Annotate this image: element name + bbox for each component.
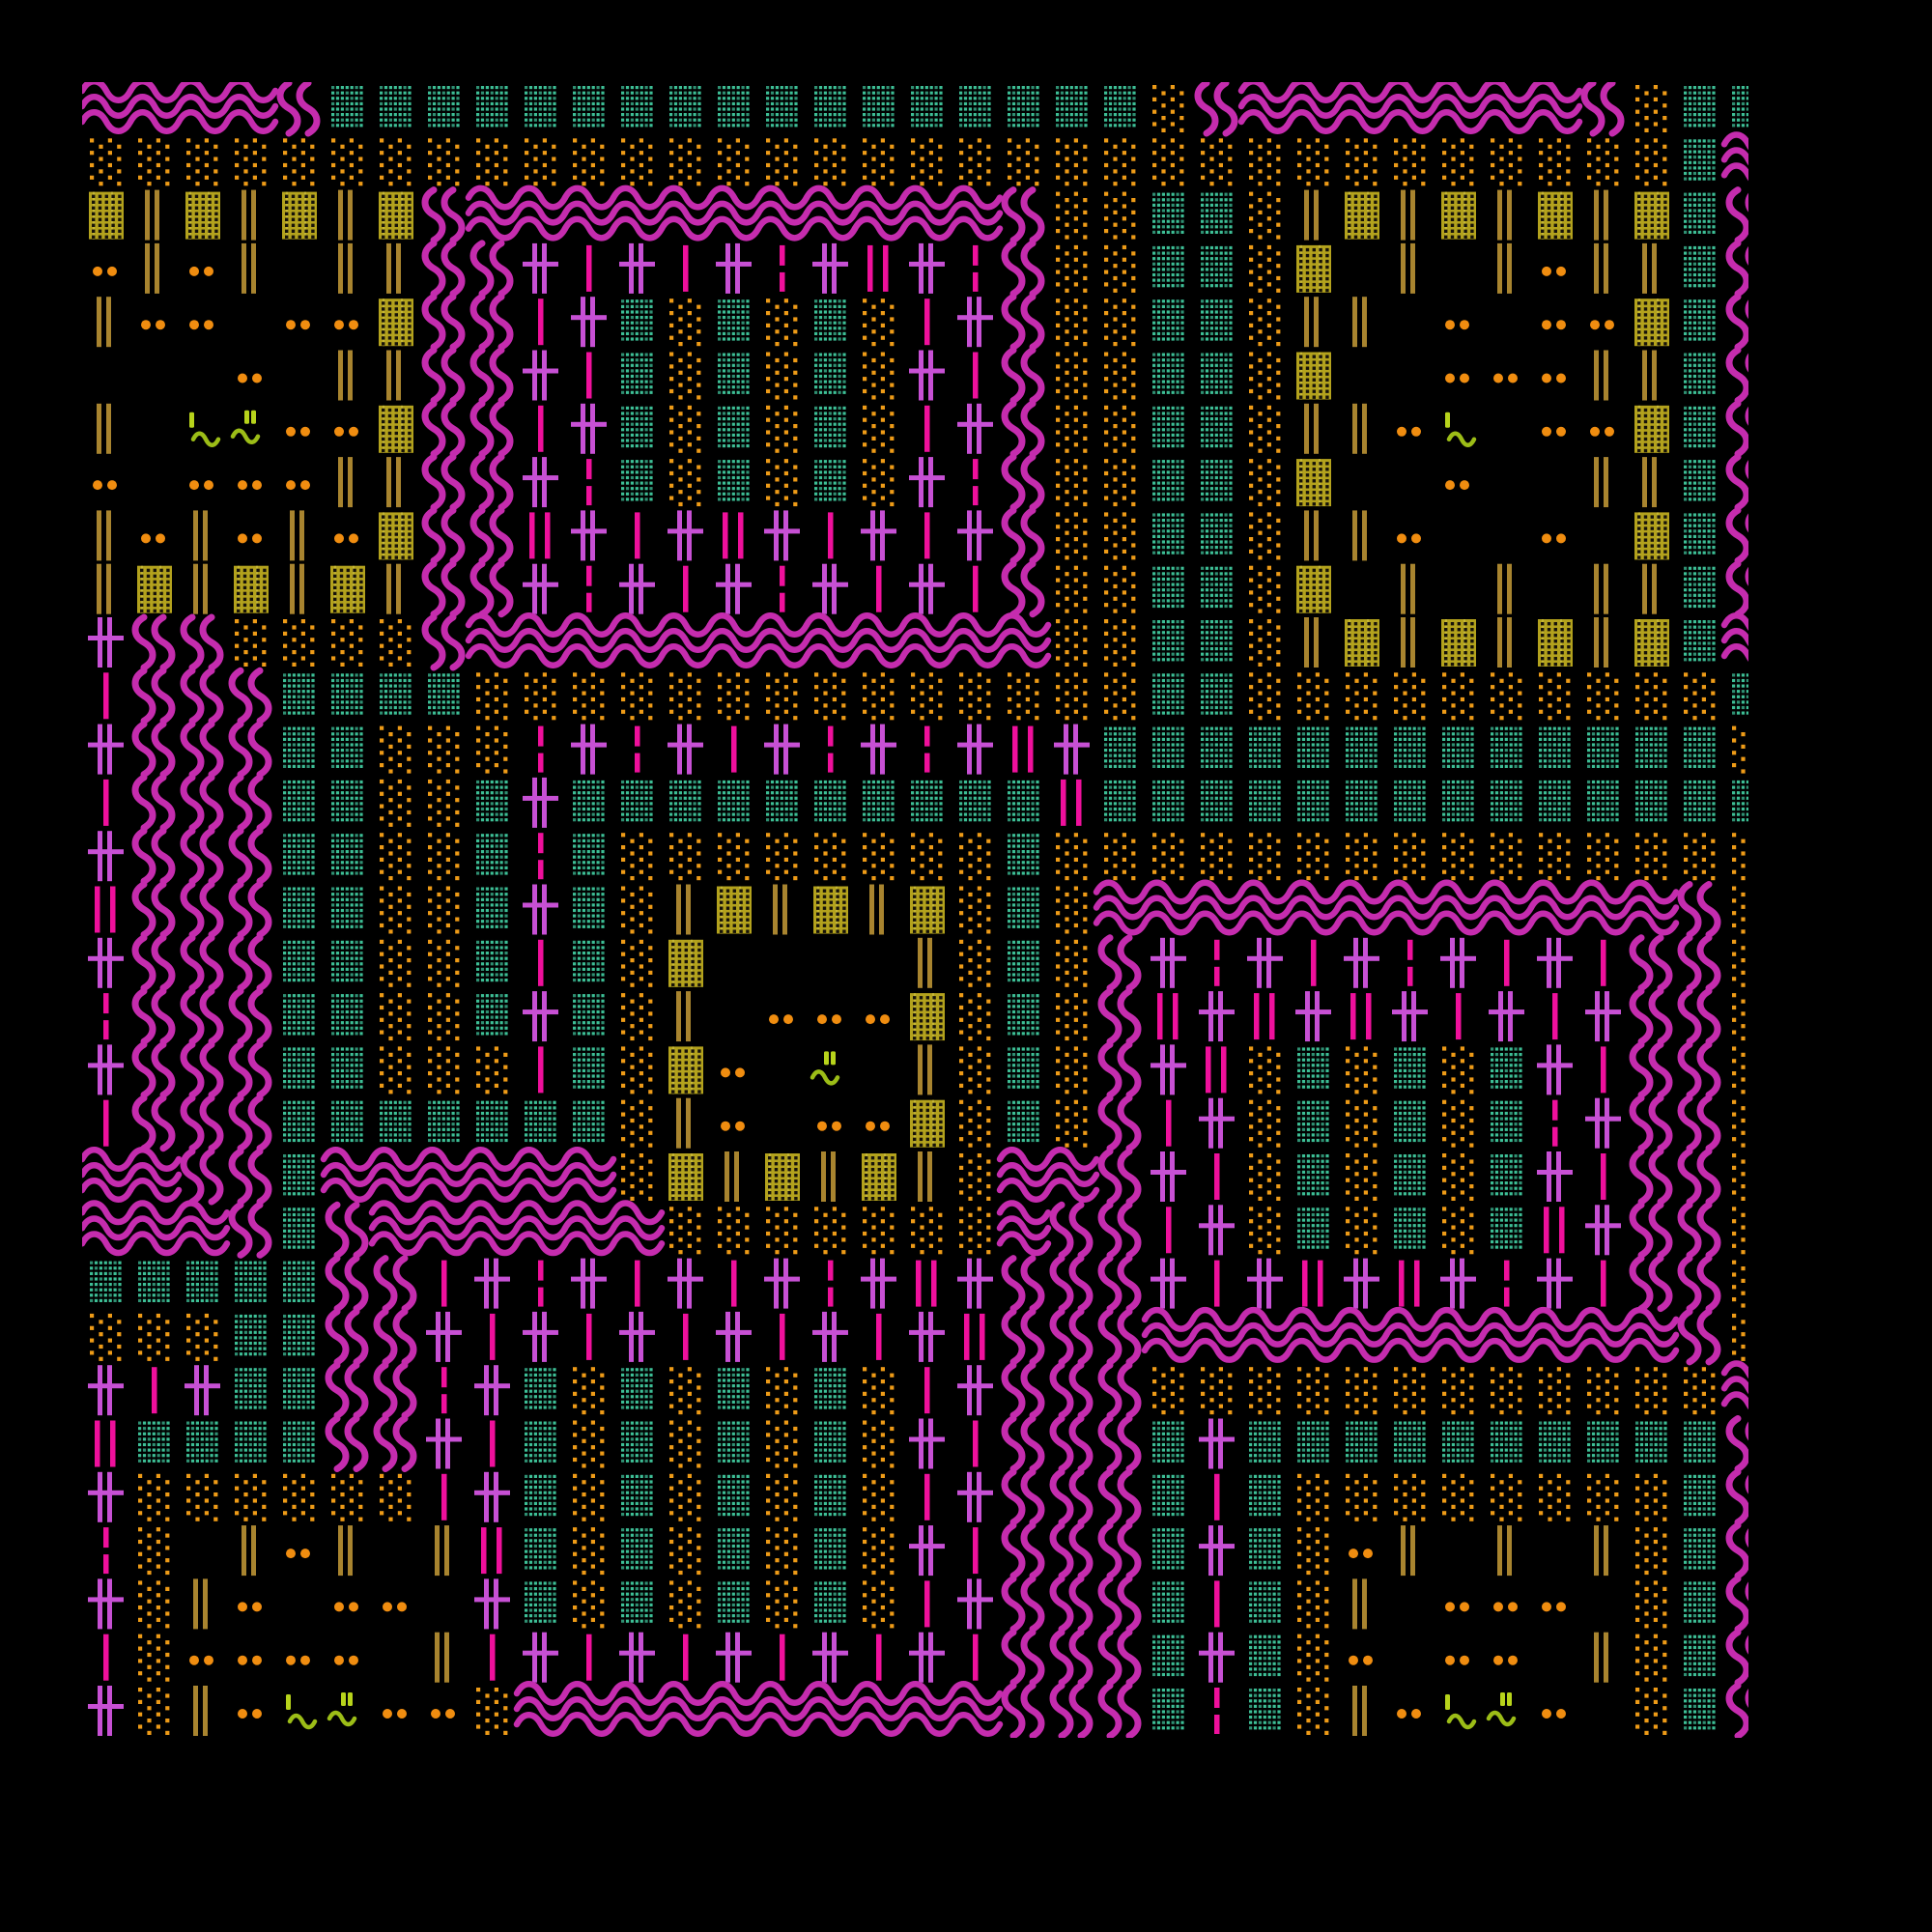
pattern-cells xyxy=(82,81,1773,1736)
artwork-canvas xyxy=(0,0,1932,1932)
generative-pattern-svg xyxy=(0,0,1932,1932)
